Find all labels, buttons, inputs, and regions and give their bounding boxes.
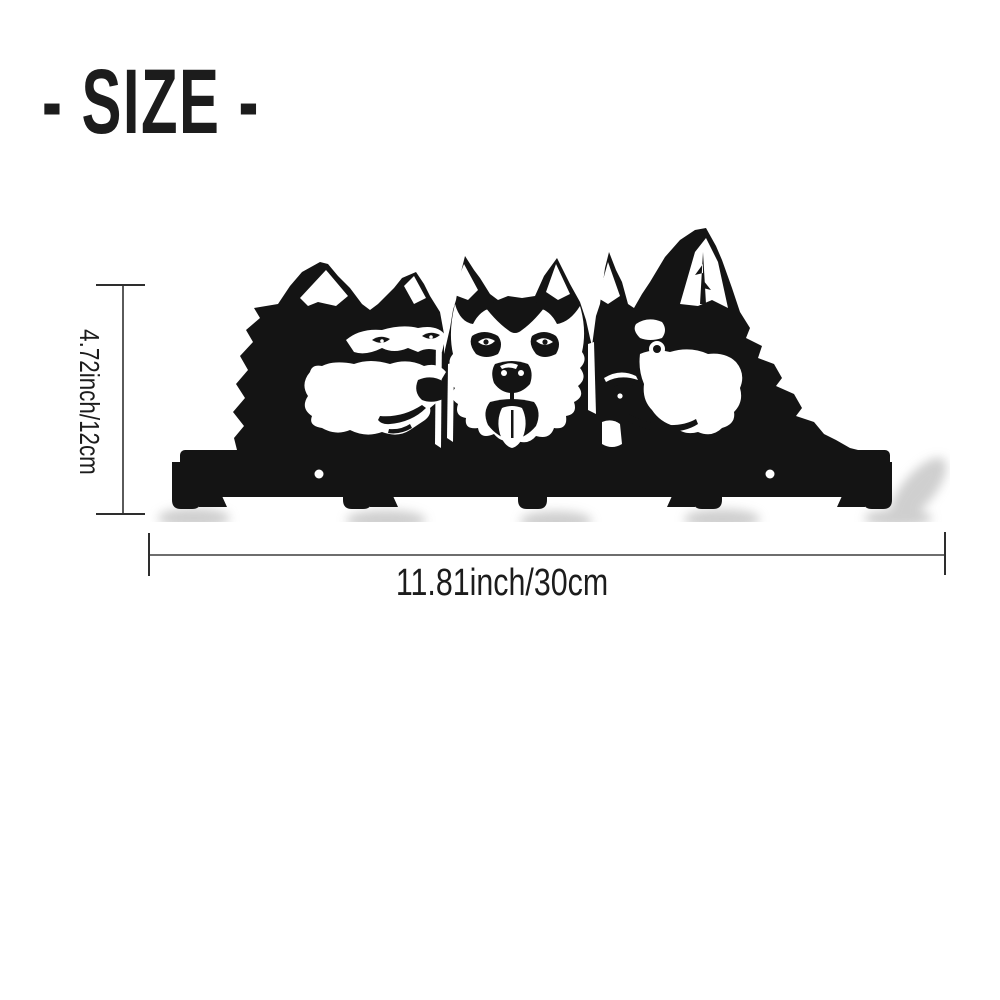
screw-hole-left xyxy=(315,470,324,479)
page-title: - SIZE - xyxy=(42,50,260,155)
height-dimension-top-tick xyxy=(96,284,145,286)
hook-3 xyxy=(518,462,547,509)
height-dimension-bottom-tick xyxy=(96,513,145,515)
width-dimension-right-tick xyxy=(944,532,946,575)
husky-heads-silhouette xyxy=(233,228,884,454)
size-chart-page: - SIZE - xyxy=(0,0,1000,1000)
height-dimension-label: 4.72inch/12cm xyxy=(73,314,105,490)
width-dimension-line xyxy=(149,554,946,556)
screw-hole-right xyxy=(766,470,775,479)
width-dimension-label: 11.81inch/30cm xyxy=(382,562,622,605)
height-dimension-line xyxy=(122,285,124,514)
width-dimension-left-tick xyxy=(148,533,150,576)
husky-key-rack-graphic xyxy=(150,212,950,522)
